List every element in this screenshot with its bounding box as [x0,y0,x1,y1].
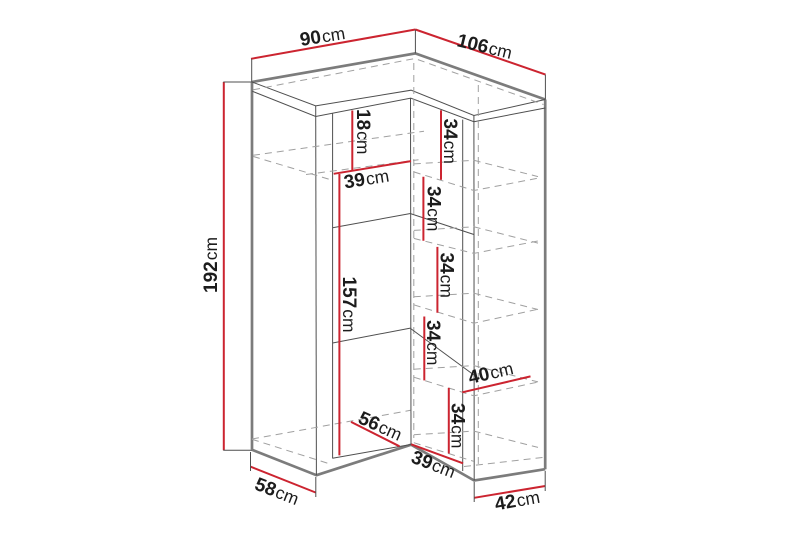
svg-text:34cm: 34cm [439,119,460,164]
svg-text:34cm: 34cm [447,403,468,448]
svg-text:34cm: 34cm [422,320,443,365]
svg-text:18cm: 18cm [352,109,373,154]
svg-text:34cm: 34cm [436,253,457,298]
svg-text:157cm: 157cm [338,277,359,333]
svg-text:192cm: 192cm [201,237,222,293]
svg-text:34cm: 34cm [423,186,444,231]
